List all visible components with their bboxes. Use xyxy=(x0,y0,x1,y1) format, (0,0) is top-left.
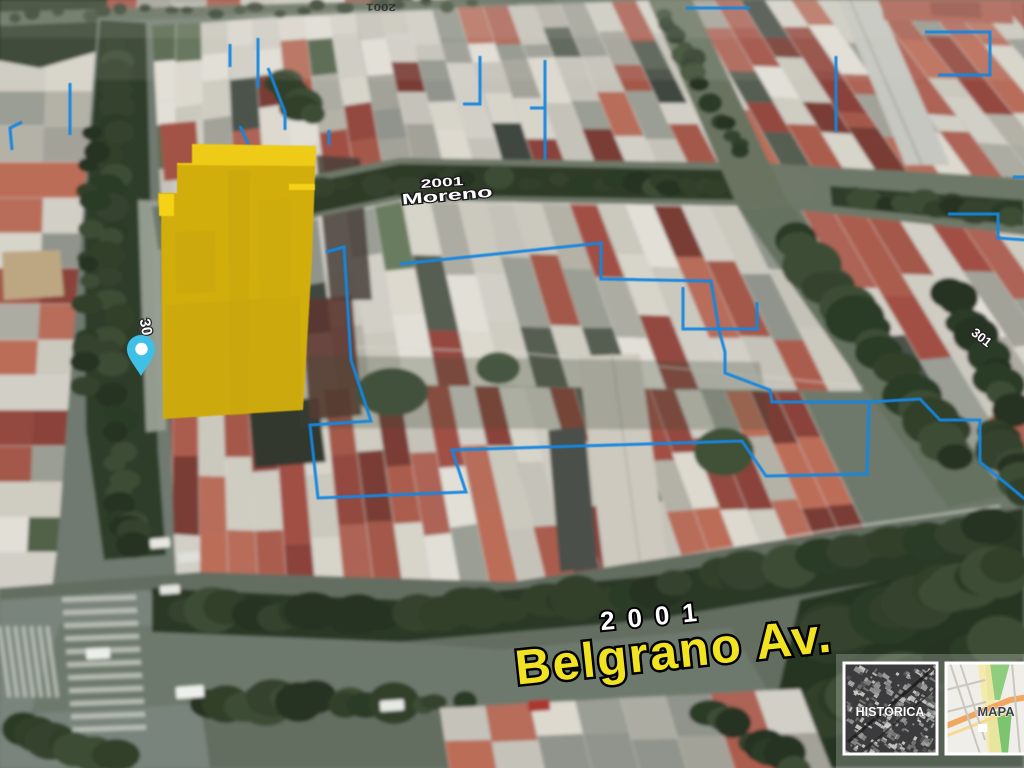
svg-text:2001: 2001 xyxy=(365,1,396,13)
svg-text:HISTÓRICA: HISTÓRICA xyxy=(856,704,925,719)
svg-text:MAPA: MAPA xyxy=(977,704,1015,719)
svg-text:30: 30 xyxy=(136,317,156,336)
